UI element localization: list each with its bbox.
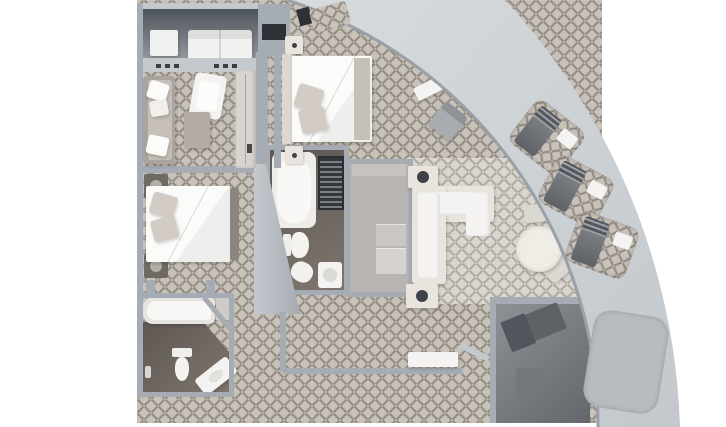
niche-side-table <box>556 128 579 150</box>
floor-plan <box>0 0 726 427</box>
niche-side-table <box>612 231 634 250</box>
niche-side-table <box>586 179 608 200</box>
open-niche <box>581 308 671 417</box>
